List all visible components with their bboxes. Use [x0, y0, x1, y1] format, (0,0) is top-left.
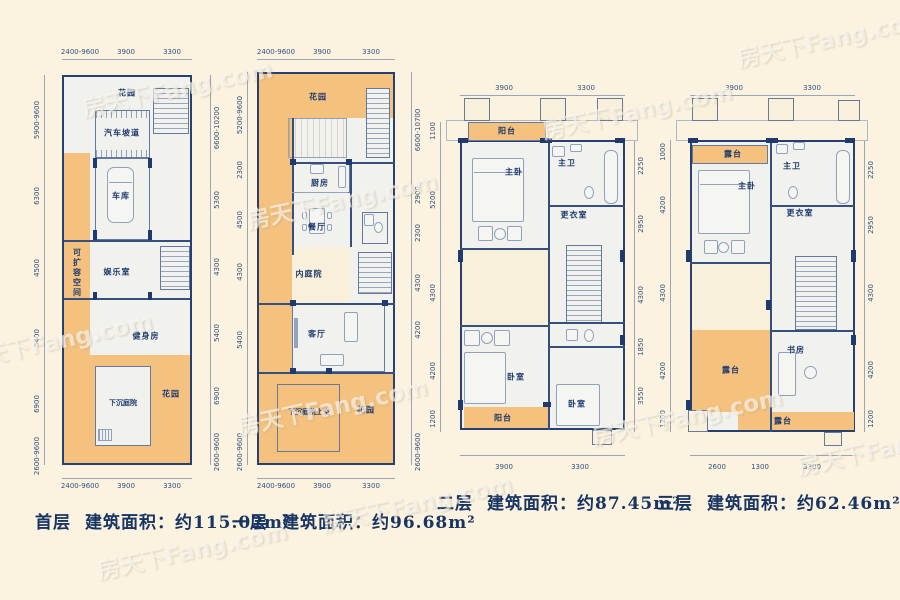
dim-label: 4300: [414, 274, 422, 292]
room-label-courtyard-above: 下沉庭院上空: [288, 407, 330, 417]
wall-column: [93, 158, 97, 168]
interior-wall: [690, 262, 770, 264]
dim-label: 2600-9600: [414, 433, 422, 471]
room-label-bedroom-left: 卧室: [507, 372, 525, 383]
dim-label: 5900-9600: [33, 101, 41, 139]
bathtub-icon: [604, 150, 618, 204]
dim-label: 4200: [429, 362, 437, 380]
room-label-garden-bottom: 花园: [162, 389, 180, 400]
plan-title-second: 二层建筑面积：约87.45m²: [437, 489, 681, 514]
counter-line: [292, 192, 348, 193]
dim-line: [460, 455, 625, 456]
dim-line: [411, 72, 412, 465]
pergola-trellis: [288, 118, 347, 158]
stove-icon: [310, 164, 324, 174]
room-label-terrace-mid: 露台: [722, 365, 740, 376]
wall-column: [845, 138, 855, 143]
dim-label: 2600-9600: [213, 433, 221, 471]
interior-wall: [350, 162, 352, 247]
room-label-kitchen: 厨房: [311, 178, 329, 189]
dim-label: 1100: [429, 122, 437, 140]
room-label-garden-top: 花园: [118, 88, 136, 99]
drain-grid-icon: [98, 429, 112, 441]
dim-label: 4200: [414, 321, 422, 339]
wall-column: [540, 138, 552, 143]
floorplan-sheet: 2400-9600 3900 3300 2400-9600 3900 3300 …: [0, 0, 900, 600]
stairs: [160, 246, 190, 290]
plan-title-area: 建筑面积：约87.45m²: [487, 494, 681, 514]
bathtub-icon: [836, 150, 850, 204]
ramp-stripes: [96, 111, 149, 118]
dim-label: 4200: [659, 196, 667, 214]
dim-label: 4300: [659, 284, 667, 302]
shower-icon: [364, 214, 374, 226]
tv-cabinet-icon: [294, 318, 298, 348]
window-post: [592, 430, 612, 445]
dim-label: 1300: [751, 463, 769, 471]
stairs: [566, 245, 602, 323]
wall-column: [346, 159, 352, 165]
dim-label: 3300: [803, 463, 821, 471]
wall-column: [686, 250, 691, 262]
dim-line: [62, 478, 192, 479]
room-label-master-bath: 主卫: [558, 158, 576, 169]
cabinet-icon: [570, 144, 582, 152]
room-label-dressing: 更衣室: [787, 208, 814, 219]
chair-icon: [327, 224, 332, 231]
dim-label: 5400: [213, 324, 221, 342]
room-label-living: 客厅: [308, 329, 326, 340]
wall-column: [851, 250, 856, 262]
room-label-expandable: 可扩容空间: [72, 248, 83, 298]
room-label-balcony-bottom: 阳台: [494, 413, 512, 424]
void-area: [462, 250, 548, 325]
dim-label: 4200: [867, 361, 875, 379]
dim-label: 3900: [495, 463, 513, 471]
ramp-stripes: [96, 150, 149, 157]
side-table-icon: [718, 242, 729, 253]
watermark: 房天下Fang.com: [734, 0, 900, 74]
window-post: [824, 432, 842, 446]
window-post: [464, 98, 490, 121]
stairs: [153, 88, 189, 134]
window-post: [540, 98, 566, 121]
wall-column: [458, 138, 468, 143]
wall-column: [620, 335, 625, 345]
dim-label: 5400: [33, 329, 41, 347]
plan-title-area: 建筑面积：约62.46m²: [707, 494, 900, 514]
room-label-bedroom-right: 卧室: [568, 399, 586, 410]
wall-column: [326, 368, 332, 374]
dim-line: [210, 75, 211, 465]
wall-column: [543, 402, 551, 407]
dim-label: 3900: [117, 48, 135, 56]
wall-column: [148, 230, 152, 240]
room-label-inner-courtyard: 内庭院: [296, 269, 323, 280]
bed-icon: [464, 352, 506, 404]
interior-wall: [770, 141, 772, 432]
armchair-icon: [494, 330, 510, 346]
room-label-garden-top: 花园: [309, 92, 327, 103]
dim-label: 6900: [213, 387, 221, 405]
wall-column: [851, 335, 856, 345]
wall-column: [93, 292, 97, 300]
dim-line: [440, 122, 441, 432]
dim-label: 3550: [637, 387, 645, 405]
dim-label: 4300: [867, 284, 875, 302]
dim-line: [634, 140, 635, 432]
wall-column: [148, 292, 152, 300]
dim-line: [670, 140, 671, 432]
interior-wall: [548, 205, 625, 207]
toilet-icon: [584, 329, 594, 342]
interior-wall: [64, 298, 190, 300]
dim-label: 3900: [495, 84, 513, 92]
toilet-icon: [374, 222, 383, 233]
sofa-icon: [344, 312, 358, 342]
room-label-garage: 车库: [112, 191, 130, 202]
room-label-terrace-top: 露台: [724, 149, 742, 160]
dim-label: 3900: [117, 482, 135, 490]
dim-label: 5200-9600: [236, 96, 244, 134]
dim-label: 4300: [429, 284, 437, 302]
chair-icon: [804, 366, 817, 379]
wall-column: [148, 158, 152, 168]
dim-line: [690, 455, 855, 456]
dim-label: 1850: [637, 338, 645, 356]
dim-label: 2950: [867, 216, 875, 234]
wall-column: [686, 400, 691, 410]
dim-label: 1200: [429, 410, 437, 428]
dim-line: [257, 59, 395, 60]
dim-label: 2600-9600: [236, 433, 244, 471]
sofa-icon: [320, 354, 344, 366]
dim-label: 3900: [313, 48, 331, 56]
plan-title-area: 建筑面积：约96.68m²: [282, 513, 476, 533]
dim-label: 2300: [236, 161, 244, 179]
room-label-master-bath: 主卫: [783, 161, 801, 172]
wall-column: [290, 300, 296, 306]
dim-label: 2400-9600: [61, 48, 99, 56]
dim-label: 3300: [163, 482, 181, 490]
dim-label: 1200: [867, 410, 875, 428]
dim-label: 4500: [33, 259, 41, 277]
dim-label: 2600: [708, 463, 726, 471]
toilet-icon: [584, 186, 594, 199]
dim-label: 3300: [362, 48, 380, 56]
window-post: [597, 98, 623, 121]
wall-column: [290, 368, 296, 374]
dim-line: [460, 95, 625, 96]
room-label-dressing: 更衣室: [561, 210, 588, 221]
dim-line: [257, 478, 395, 479]
dim-label: 4300: [236, 263, 244, 281]
interior-wall: [460, 325, 548, 327]
stairs: [358, 252, 392, 294]
armchair-icon: [464, 330, 480, 346]
dim-label: 5200: [429, 191, 437, 209]
dim-label: 2950: [637, 215, 645, 233]
room-label-study: 书房: [787, 345, 805, 356]
dim-label: 3900: [725, 84, 743, 92]
room-label-master-bedroom: 主卧: [505, 167, 523, 178]
wall-column: [458, 400, 463, 410]
plan-title-third: 三层建筑面积：约62.46m²: [657, 489, 900, 514]
interior-wall: [460, 248, 548, 250]
dim-label: 2250: [637, 157, 645, 175]
dim-label: 5400: [236, 331, 244, 349]
desk-icon: [778, 352, 796, 396]
interior-wall: [259, 303, 395, 305]
room-label-recreation: 娱乐室: [104, 267, 131, 278]
dim-label: 5300: [213, 191, 221, 209]
dim-label: 3900: [313, 482, 331, 490]
plan-title-name: 首层: [35, 513, 71, 533]
dim-label: 3300: [577, 84, 595, 92]
dim-label: 3300: [571, 463, 589, 471]
dim-label: 2400-9600: [61, 482, 99, 490]
sink-icon: [566, 329, 578, 341]
sink-icon: [552, 146, 565, 157]
interior-wall: [292, 162, 395, 164]
window-post: [838, 100, 860, 121]
car-windshield: [109, 182, 132, 183]
wall-column: [290, 159, 296, 165]
dim-label: 3300: [163, 48, 181, 56]
chair-icon: [302, 224, 307, 231]
plan-title-name: 二层: [437, 494, 473, 514]
dim-label: 4300: [637, 286, 645, 304]
room-label-master-bedroom: 主卧: [738, 181, 756, 192]
armchair-icon: [731, 240, 745, 254]
toilet-icon: [788, 186, 798, 199]
dim-line: [247, 72, 248, 465]
dim-label: 6300: [33, 187, 41, 205]
wall-column: [766, 300, 771, 310]
room-label-balcony-top: 阳台: [498, 126, 516, 137]
dim-label: 1000: [659, 143, 667, 161]
dim-label: 3300: [803, 84, 821, 92]
terrace-bottom-area: [738, 412, 854, 430]
dim-line: [62, 59, 192, 60]
room-label-sunken-courtyard: 下沉庭院: [109, 398, 137, 408]
dim-label: 4300: [213, 258, 221, 276]
chair-icon: [302, 212, 307, 219]
dim-label: 4500: [236, 211, 244, 229]
wall-column: [620, 250, 625, 262]
armchair-icon: [478, 226, 493, 241]
armchair-icon: [507, 226, 522, 241]
side-table-icon: [481, 332, 493, 344]
cabinet-icon: [793, 142, 805, 150]
armchair-icon: [704, 240, 718, 254]
dim-label: 6600-10200: [213, 107, 221, 150]
dim-line: [44, 75, 45, 465]
wall-column: [688, 138, 698, 143]
window-post: [692, 98, 718, 121]
interior-wall: [292, 118, 294, 255]
dim-line: [864, 140, 865, 432]
dim-label: 2250: [867, 161, 875, 179]
room-label-car-ramp: 汽车坡道: [104, 128, 140, 139]
dim-label: 2300: [414, 224, 422, 242]
counter-icon: [338, 166, 346, 188]
interior-wall: [548, 141, 550, 430]
stairs: [795, 256, 837, 330]
dim-label: 3300: [362, 482, 380, 490]
plan-title-name: 一层: [232, 513, 268, 533]
room-label-garden-bottom: 花园: [357, 405, 375, 416]
room-label-terrace-bottom: 露台: [774, 416, 792, 427]
room-label-dining: 餐厅: [308, 222, 326, 233]
courtyard-outline: [277, 384, 340, 452]
sink-icon: [776, 144, 788, 154]
void-area: [692, 262, 770, 330]
stairs: [366, 88, 390, 158]
dim-label: 2400-9600: [257, 482, 295, 490]
dim-label: 1200: [659, 410, 667, 428]
wall-column: [766, 138, 778, 143]
window-post: [688, 410, 708, 432]
room-label-gym: 健身房: [133, 331, 160, 342]
dim-label: 6900: [33, 395, 41, 413]
wall-column: [93, 230, 97, 240]
dim-line: [690, 95, 855, 96]
wall-column: [458, 250, 463, 262]
interior-wall: [64, 240, 190, 242]
wall-column: [382, 300, 388, 306]
plan-title-name: 三层: [657, 494, 693, 514]
dim-label: 2600-9600: [33, 437, 41, 475]
interior-wall: [548, 346, 625, 348]
dim-label: 2400-9600: [257, 48, 295, 56]
wall-column: [615, 138, 625, 143]
side-table-icon: [494, 228, 506, 240]
dim-label: 6600-10700: [414, 109, 422, 152]
window-post: [768, 98, 794, 121]
interior-wall: [770, 330, 855, 332]
chair-icon: [327, 212, 332, 219]
interior-wall: [548, 322, 625, 324]
dim-label: 4200: [659, 362, 667, 380]
dim-label: 2900: [414, 186, 422, 204]
